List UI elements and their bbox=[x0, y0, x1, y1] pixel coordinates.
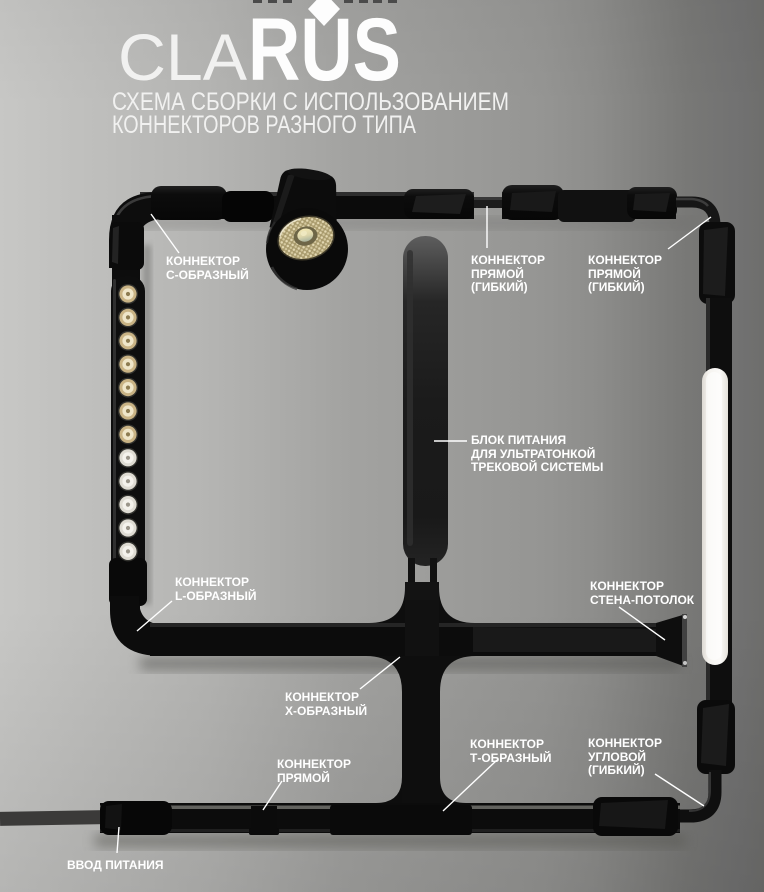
svg-text:CLA: CLA bbox=[118, 20, 247, 94]
svg-text:КОННЕКТОРОВ РАЗНОГО ТИПА: КОННЕКТОРОВ РАЗНОГО ТИПА bbox=[112, 111, 416, 139]
